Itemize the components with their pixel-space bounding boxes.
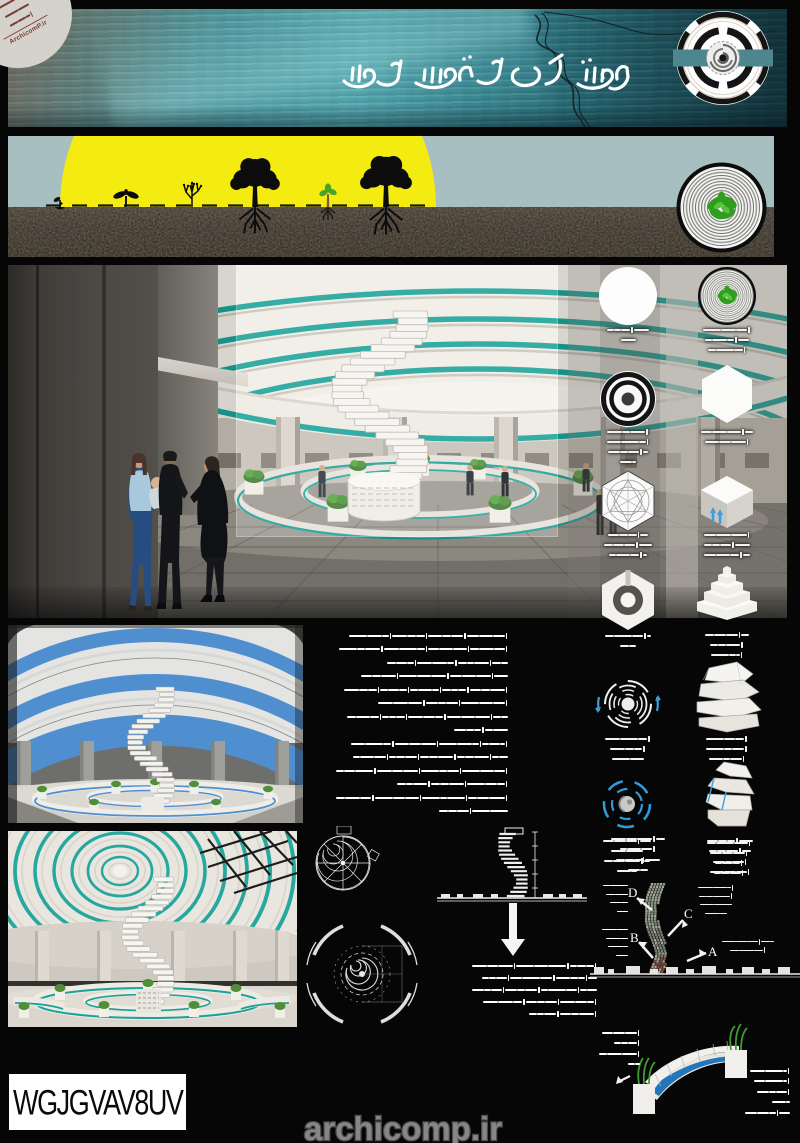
svg-text:B: B	[630, 930, 639, 945]
